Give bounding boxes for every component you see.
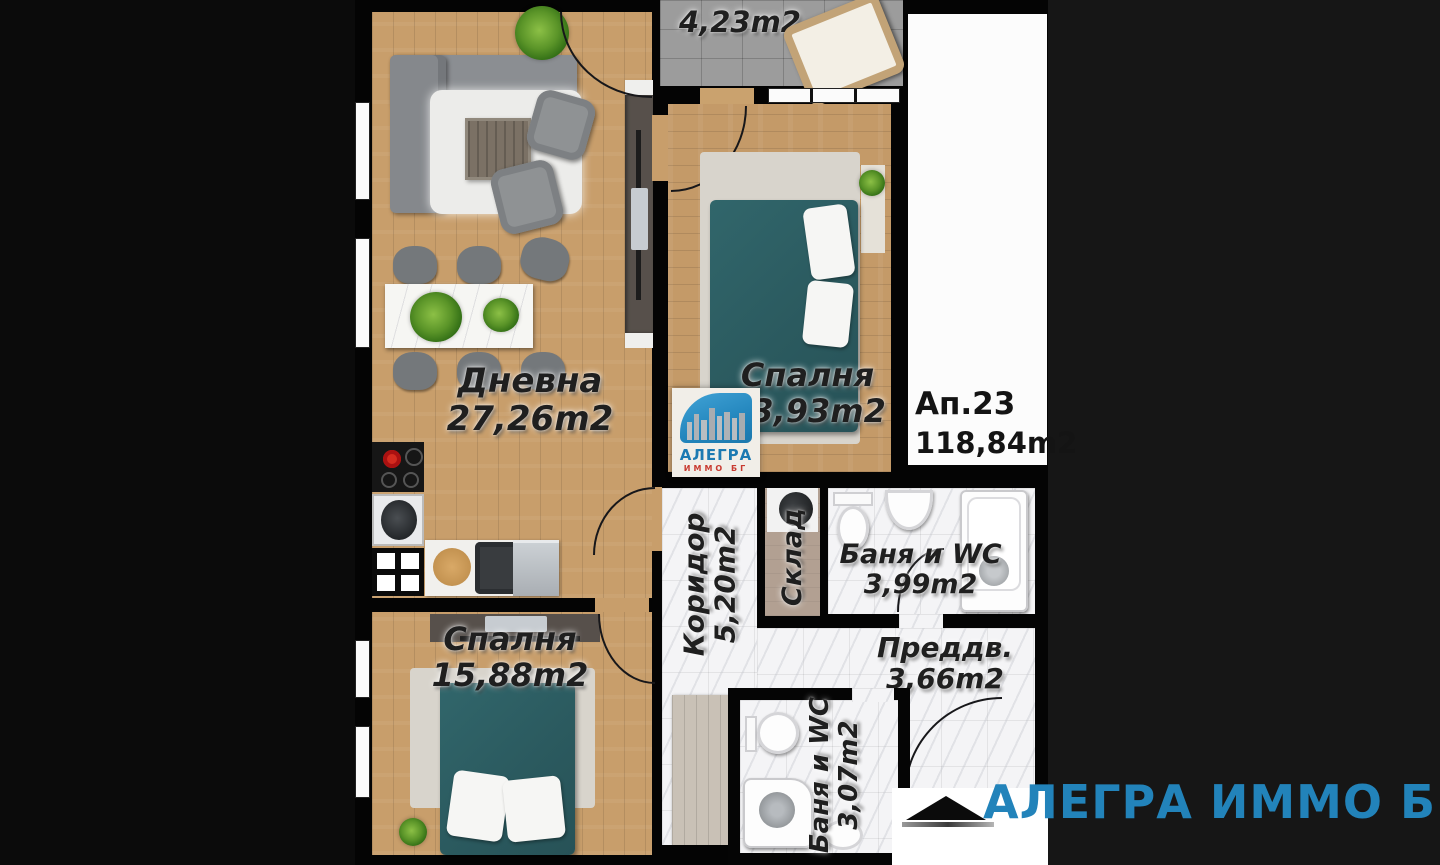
apartment-number: Ап.23	[915, 386, 1015, 422]
logo-brand: АЛЕГРА	[680, 446, 752, 464]
room-name: Коридор	[679, 513, 710, 657]
info-panel: Ап.23 118,84m2	[908, 14, 1047, 465]
room-area: 3,07m2	[836, 697, 865, 853]
watermark-brand: АЛЕГРА ИММО БГ	[983, 775, 1440, 829]
shelf	[625, 333, 653, 348]
pillow	[446, 769, 511, 842]
pillow	[802, 280, 854, 348]
room-label-corridor: Коридор 5,20m2	[660, 492, 760, 677]
kitchen-window	[372, 548, 424, 596]
corridor-label-text: Коридор 5,20m2	[679, 513, 742, 657]
washer-drum	[381, 500, 417, 540]
burner-red	[383, 450, 401, 468]
room-label-storage: Склад	[760, 498, 825, 616]
room-name: Преддв.	[860, 632, 1030, 663]
right-background	[1048, 0, 1440, 865]
building-bar	[694, 414, 699, 440]
window	[355, 238, 370, 348]
balcony-window	[768, 88, 900, 103]
room-name: Баня и WC	[833, 540, 1008, 570]
storage-label-text: Склад	[777, 508, 807, 606]
room-label-bathroom-second: Баня и WC 3,07m2	[793, 695, 878, 855]
door-opening	[595, 598, 649, 612]
dishwasher	[513, 540, 559, 596]
room-name: Спалня	[410, 622, 610, 658]
building-bar	[709, 408, 715, 440]
room-name: Дневна	[415, 362, 645, 400]
building-bar	[701, 420, 707, 440]
screenshot: Дневна 27,26m2 4,23m2	[0, 0, 1440, 865]
building-bar	[717, 416, 722, 440]
room-area: 27,26m2	[415, 400, 645, 438]
window-pane	[377, 575, 395, 591]
room-label-living: Дневна 27,26m2	[415, 362, 645, 438]
plant	[410, 292, 462, 342]
dining-chair	[393, 246, 437, 284]
pillow	[502, 775, 566, 843]
apartment-total-area: 118,84m2	[915, 426, 1077, 460]
window-pane	[401, 575, 419, 591]
bathroom-second-label-text: Баня и WC 3,07m2	[806, 697, 864, 853]
dining-chair	[457, 246, 501, 284]
plant	[399, 818, 427, 846]
window-pane	[401, 553, 419, 569]
window-pane	[377, 553, 395, 569]
room-label-bathroom-main: Баня и WC 3,99m2	[833, 540, 1008, 600]
agency-logo: АЛЕГРА ИММО БГ	[672, 388, 760, 477]
door-opening	[652, 115, 668, 181]
floor-plan: Дневна 27,26m2 4,23m2	[355, 0, 1048, 865]
building-bar	[732, 418, 737, 440]
room-name: Склад	[777, 508, 807, 606]
roof-icon-shadow	[902, 822, 994, 827]
burner	[405, 448, 423, 466]
roof-icon	[906, 796, 986, 820]
room-label-bedroom-left: Спалня 15,88m2	[410, 622, 610, 694]
building-bar	[687, 422, 692, 440]
toilet-tank	[745, 716, 757, 752]
window	[355, 102, 370, 200]
burner	[381, 472, 397, 488]
building-bar	[724, 412, 730, 440]
room-label-entry: Преддв. 3,66m2	[860, 632, 1030, 695]
tv-console	[631, 188, 648, 250]
window	[355, 640, 370, 698]
balcony-door-threshold	[700, 88, 754, 104]
cutting-board	[433, 548, 471, 586]
room-area: 5,20m2	[710, 513, 741, 657]
toilet	[833, 492, 873, 506]
plant	[483, 298, 519, 332]
room-area: 3,99m2	[833, 570, 1008, 600]
room-name: Баня и WC	[806, 697, 835, 853]
skyline-icon	[680, 393, 752, 443]
wardrobe	[672, 695, 730, 845]
building-bar	[739, 413, 745, 440]
door-opening	[899, 614, 943, 628]
logo-subtitle: ИММО БГ	[684, 464, 748, 473]
window	[355, 726, 370, 798]
plant	[859, 170, 885, 196]
shower-head	[759, 792, 795, 828]
burner	[403, 472, 419, 488]
room-area: 15,88m2	[410, 658, 610, 694]
